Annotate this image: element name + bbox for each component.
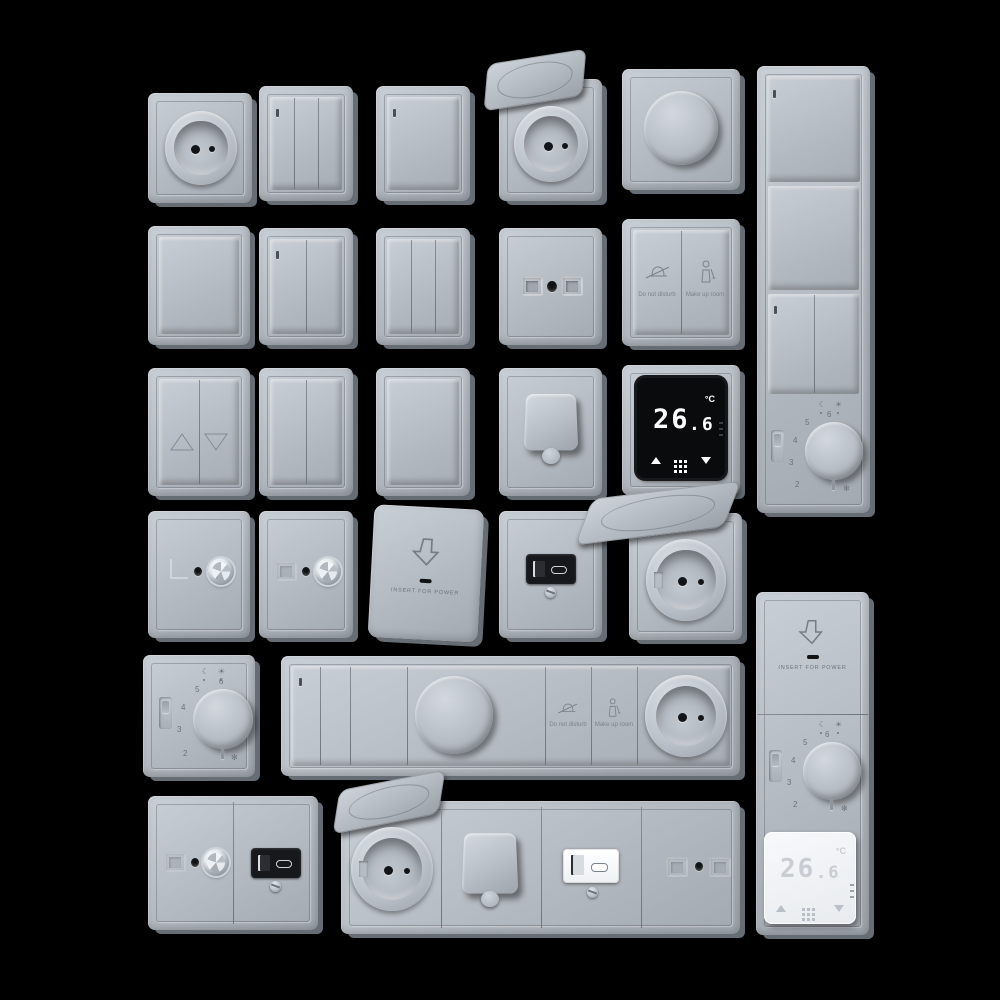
blinds-switch-plate xyxy=(148,368,250,496)
dial-number: 4 xyxy=(791,756,795,765)
usb-module-white[interactable] xyxy=(563,849,619,883)
dial-pointer xyxy=(830,798,833,810)
switch-3gang-plate xyxy=(259,86,353,201)
usb-a-port[interactable] xyxy=(571,855,584,875)
earth-clip xyxy=(654,572,663,588)
dimmer-plate xyxy=(622,69,740,190)
pin-hole xyxy=(191,145,200,154)
frost-icon: ✻ xyxy=(231,753,238,762)
arrow-down-icon xyxy=(409,534,445,570)
switch-1gang-plate xyxy=(376,368,470,496)
moon-icon: ☾ xyxy=(819,720,826,729)
dnd-switch-plate: Do not disturb Make up room xyxy=(622,219,740,346)
dnd-label: Do not disturb xyxy=(547,722,589,729)
temperature-unit: °C xyxy=(705,394,715,404)
indicator-slot xyxy=(773,90,776,98)
horizontal-multipanel xyxy=(341,801,740,934)
triangle-up-icon xyxy=(169,431,195,453)
keycard-label: INSERT FOR POWER xyxy=(765,665,860,671)
sun-icon: ☀ xyxy=(218,667,225,676)
rocker-1gang[interactable] xyxy=(387,97,459,190)
maid-icon xyxy=(698,260,716,284)
triangle-up-icon[interactable] xyxy=(651,457,661,464)
rocker-3gang[interactable] xyxy=(270,97,342,190)
dial-number: 3 xyxy=(787,778,791,787)
moon-icon: ☾ xyxy=(202,667,209,676)
card-led-slot xyxy=(807,655,819,659)
thermostat-dial-plate: ☾ ☀ 2 3 4 5 6 ✻ xyxy=(143,655,255,777)
side-buttons[interactable] xyxy=(850,884,854,886)
mode-slider[interactable] xyxy=(771,430,784,462)
data-port[interactable] xyxy=(709,857,731,877)
sun-icon: ☀ xyxy=(835,720,842,729)
do-not-disturb-button[interactable]: Do not disturb xyxy=(545,666,591,766)
thermostat-screen-white: 26 .6 °C xyxy=(764,832,856,924)
screw xyxy=(270,881,281,892)
mode-dot xyxy=(837,732,839,734)
frost-icon: ✻ xyxy=(841,804,848,813)
socket-round xyxy=(165,111,237,185)
divider xyxy=(441,807,442,928)
usb-a-port[interactable] xyxy=(258,855,270,871)
pin-hole xyxy=(404,868,410,874)
make-up-room-button[interactable]: Make up room xyxy=(681,230,729,335)
mode-dot xyxy=(820,732,822,734)
blinds-rockers[interactable] xyxy=(159,379,239,485)
pin-hole xyxy=(209,146,215,152)
switch-3gang-plate xyxy=(376,228,470,345)
socket-plate xyxy=(148,93,252,203)
triangle-down-icon xyxy=(203,431,229,453)
blank-module xyxy=(768,186,859,290)
mode-dot xyxy=(837,412,839,414)
dial-pointer xyxy=(832,478,835,490)
coax-jack[interactable] xyxy=(194,567,202,576)
pin-hole xyxy=(678,713,687,722)
usb-c-port[interactable] xyxy=(591,863,608,872)
triangle-up-icon[interactable] xyxy=(776,905,786,912)
dnd-label: Do not disturb xyxy=(637,292,677,299)
dial-number: 6 xyxy=(827,410,831,419)
metal-connector[interactable] xyxy=(208,558,234,585)
cable-cover xyxy=(462,833,519,893)
divider xyxy=(233,802,234,924)
socket-round xyxy=(514,106,588,182)
indicator-slot xyxy=(393,109,396,117)
pin-hole xyxy=(562,143,568,149)
dial-number: 2 xyxy=(183,749,187,758)
panel-pad: Do not disturb Make up room xyxy=(291,666,730,766)
pin-hole xyxy=(678,577,687,586)
vertical-multipanel-bottom: INSERT FOR POWER ☾ ☀ 2 3 4 5 6 ✻ 26 .6 °… xyxy=(756,592,869,935)
temperature-unit: °C xyxy=(836,846,846,856)
data-port[interactable] xyxy=(561,276,583,296)
switch-2gang-plate xyxy=(259,228,353,345)
switch-2gang-plate xyxy=(259,368,353,496)
dial-number: 4 xyxy=(181,703,185,712)
arrow-down-icon xyxy=(797,617,827,647)
divider xyxy=(350,667,351,765)
divider xyxy=(757,714,868,715)
rocker-3gang[interactable] xyxy=(387,239,459,334)
triangle-down-icon[interactable] xyxy=(834,905,844,912)
dimmer-section xyxy=(407,666,497,766)
bell-slash-icon xyxy=(645,262,671,284)
pin-hole xyxy=(384,866,393,875)
mode-slider[interactable] xyxy=(159,697,172,729)
dimmer-knob[interactable] xyxy=(644,91,718,165)
triangle-down-icon[interactable] xyxy=(701,457,711,464)
horizontal-multipanel: Do not disturb Make up room xyxy=(281,656,740,776)
do-not-disturb-button[interactable]: Do not disturb xyxy=(633,230,681,335)
sun-icon: ☀ xyxy=(835,400,842,409)
screw xyxy=(587,887,598,898)
temperature-value: 26 xyxy=(780,854,815,884)
thermostat-black-plate: 26 .6 °C xyxy=(622,365,740,495)
indicator-slot xyxy=(774,306,777,314)
blank-cover xyxy=(159,237,239,334)
dots-grid-icon[interactable] xyxy=(802,908,805,911)
usb-c-port[interactable] xyxy=(551,566,567,574)
divider xyxy=(641,807,642,928)
rocker-1gang[interactable] xyxy=(387,379,459,485)
indicator-slot xyxy=(276,109,279,117)
usb-c-port[interactable] xyxy=(276,860,292,868)
dial-number: 3 xyxy=(177,725,181,734)
usb-module-black[interactable] xyxy=(526,554,576,584)
dial-number: 3 xyxy=(789,458,793,467)
coax-jack[interactable] xyxy=(547,281,557,292)
pin-hole xyxy=(698,715,704,721)
socket-lidded-plate xyxy=(499,79,602,201)
metal-connector[interactable] xyxy=(315,558,341,585)
data-port[interactable] xyxy=(164,852,186,872)
coax-jack[interactable] xyxy=(302,567,310,576)
frost-icon: ✻ xyxy=(843,484,850,493)
cable-cover xyxy=(524,394,578,450)
dial-number: 4 xyxy=(793,436,797,445)
thermostat-dial-module: ☾ ☀ 2 3 4 5 6 ✻ xyxy=(767,398,860,503)
socket-round xyxy=(351,827,433,911)
socket-round xyxy=(645,675,727,757)
cable-grommet xyxy=(542,448,560,464)
divider xyxy=(541,807,542,928)
blank-plate xyxy=(148,226,250,345)
socket-lid-open[interactable] xyxy=(484,49,587,112)
thermostat-dial-module: ☾ ☀ 2 3 4 5 6 ✻ xyxy=(765,720,860,828)
data-port[interactable] xyxy=(666,857,688,877)
socket-round xyxy=(646,539,726,621)
vertical-multipanel-top: ☾ ☀ 2 3 4 5 6 ✻ xyxy=(757,66,870,513)
rocker-2gang[interactable] xyxy=(270,379,342,485)
pin-hole xyxy=(698,579,704,585)
data-port[interactable] xyxy=(275,561,297,581)
corner-mark xyxy=(170,559,188,579)
makeup-label: Make up room xyxy=(685,292,725,299)
dial-number: 6 xyxy=(219,677,223,686)
thermostat-dial-knob[interactable] xyxy=(803,742,861,800)
coax-jack[interactable] xyxy=(695,862,703,871)
thermostat-screen: 26 .6 °C xyxy=(637,378,725,478)
socket-lidded-plate xyxy=(629,513,742,640)
rocker-1gang[interactable] xyxy=(767,76,860,182)
temperature-value: 26 xyxy=(653,404,690,435)
dial-number: 6 xyxy=(825,730,829,739)
temperature-decimal: .6 xyxy=(689,414,715,435)
keycard-holder[interactable]: INSERT FOR POWER xyxy=(368,504,485,643)
mode-dot xyxy=(820,412,822,414)
product-render-scene: ☾ ☀ 2 3 4 5 6 ✻ xyxy=(0,0,1000,1000)
moon-icon: ☾ xyxy=(819,400,826,409)
socket-lid-open[interactable] xyxy=(332,770,445,835)
dial-number: 5 xyxy=(195,685,199,694)
indicator-slot xyxy=(276,251,279,259)
thermostat-dial-knob[interactable] xyxy=(805,422,863,480)
coax-jack[interactable] xyxy=(191,858,199,867)
earth-clip xyxy=(359,861,368,877)
socket-well xyxy=(174,121,227,176)
switch-1gang-plate xyxy=(376,86,470,201)
temperature-decimal: .6 xyxy=(816,863,840,883)
rocker-2gang[interactable] xyxy=(768,294,859,394)
maid-icon xyxy=(606,698,621,718)
usb-module-black[interactable] xyxy=(251,848,301,878)
thermostat-dial-knob[interactable] xyxy=(193,689,253,749)
tv-outlet-plate xyxy=(259,511,353,638)
dnd-buttons: Do not disturb Make up room xyxy=(633,230,729,335)
pin-hole xyxy=(544,142,553,151)
usb-a-port[interactable] xyxy=(533,561,545,577)
dial-number: 5 xyxy=(805,418,809,427)
dimmer-knob[interactable] xyxy=(415,676,493,754)
metal-connector[interactable] xyxy=(203,849,229,876)
double-outlet-plate xyxy=(148,796,318,930)
bell-slash-icon xyxy=(557,700,579,718)
screw xyxy=(545,587,556,598)
side-buttons[interactable] xyxy=(719,422,723,424)
dial-number: 2 xyxy=(795,480,799,489)
tv-outlet-plate xyxy=(148,511,250,638)
mode-slider[interactable] xyxy=(769,750,782,782)
divider xyxy=(637,667,638,765)
cable-grommet xyxy=(481,891,499,907)
dial-number: 5 xyxy=(803,738,807,747)
divider xyxy=(320,667,321,765)
card-led-slot xyxy=(420,579,432,584)
keycard-label: INSERT FOR POWER xyxy=(370,586,480,598)
dots-grid-icon[interactable] xyxy=(674,460,677,463)
mode-dot xyxy=(203,679,205,681)
data-port[interactable] xyxy=(521,276,543,296)
makeup-label: Make up room xyxy=(593,722,635,729)
rocker-2gang[interactable] xyxy=(270,239,342,334)
indicator-slot xyxy=(299,678,302,686)
keycard-module[interactable]: INSERT FOR POWER xyxy=(765,601,860,709)
dial-pointer xyxy=(221,747,224,759)
dial-number: 2 xyxy=(793,800,797,809)
make-up-room-button[interactable]: Make up room xyxy=(591,666,637,766)
cable-outlet-plate xyxy=(499,368,602,496)
thermostat-dial-module: ☾ ☀ 2 3 4 5 6 ✻ xyxy=(153,663,245,769)
media-outlet-plate xyxy=(499,228,602,345)
